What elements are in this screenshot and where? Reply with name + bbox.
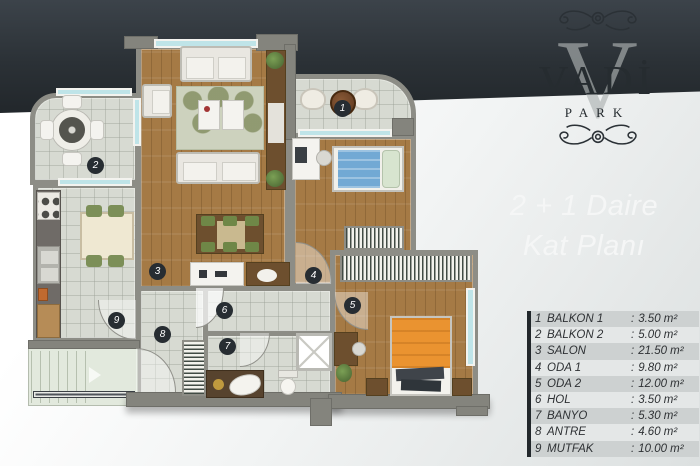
nightstand [452, 378, 472, 396]
bed-single [332, 146, 404, 192]
rug [176, 86, 264, 150]
bed-double [390, 316, 452, 396]
room-number-badge: 8 [154, 326, 171, 343]
chair [40, 120, 54, 140]
desk-chair [316, 150, 332, 166]
chair [62, 95, 82, 109]
ornament-flourish-icon [543, 123, 653, 149]
room-number-badge: 6 [216, 302, 233, 319]
wall [124, 36, 158, 49]
room-legend: 1BALKON 1:3.50 m² 2BALKON 2:5.00 m² 3SAL… [527, 311, 699, 457]
toilet [278, 370, 298, 378]
legend-row: 8ANTRE:4.60 m² [527, 424, 699, 440]
plant [336, 364, 352, 382]
room-number-badge: 7 [219, 338, 236, 355]
legend-row: 2BALKON 2:5.00 m² [527, 327, 699, 343]
chair [108, 205, 124, 217]
wardrobe [182, 340, 206, 396]
bathroom-vanity [206, 370, 264, 398]
chair [86, 205, 102, 217]
nightstand [366, 378, 388, 396]
shower [296, 333, 332, 371]
stair-handrail [33, 391, 135, 398]
room-number-badge: 9 [108, 312, 125, 329]
cooker [38, 288, 48, 301]
legend-row: 3SALON:21.50 m² [527, 343, 699, 359]
wardrobe [340, 254, 472, 282]
coffee-table [198, 100, 220, 130]
armchair [142, 84, 172, 118]
legend-row: 9MUTFAK:10.00 m² [527, 441, 699, 457]
sideboard [190, 262, 244, 286]
desk-chair [352, 342, 366, 356]
room-number-badge: 4 [305, 267, 322, 284]
stair-direction-arrow-icon [89, 367, 101, 383]
tv-unit [266, 50, 286, 190]
plan-title-line2: Kat Planı [468, 226, 700, 266]
sink [227, 372, 262, 398]
window [58, 178, 132, 186]
brand-logo: V VADİ PARK [515, 6, 680, 149]
sofa [176, 152, 260, 184]
wardrobe [344, 226, 404, 250]
plant [266, 52, 284, 69]
chair [62, 152, 82, 166]
coffee-table [222, 100, 244, 130]
sofa [180, 46, 252, 82]
dining-table [196, 214, 264, 254]
chair [108, 255, 124, 267]
toilet-bowl [280, 378, 296, 395]
round-table [52, 110, 92, 150]
window [133, 98, 141, 146]
legend-accent-bar [527, 311, 531, 457]
chair [300, 88, 326, 110]
kitchen-sink [37, 246, 60, 284]
plan-title: 2 + 1 Daire Kat Planı [468, 186, 700, 266]
wall-stub [310, 398, 332, 426]
wall [28, 340, 140, 349]
dining-table [80, 212, 134, 260]
vadi-park-floorplan-page: 1 2 3 4 5 6 7 8 9 V VADİ PARK [0, 0, 700, 466]
plan-title-line1: 2 + 1 Daire [468, 186, 700, 226]
window [466, 288, 475, 366]
chair [90, 120, 104, 140]
room-number-badge: 2 [87, 157, 104, 174]
kitchen-cabinet [37, 304, 60, 338]
logo-name: VADİ [515, 56, 680, 104]
buffet [246, 262, 290, 286]
room-number-badge: 5 [344, 297, 361, 314]
room-number-badge: 1 [334, 100, 351, 117]
room-number-badge: 3 [149, 263, 166, 280]
chair [352, 88, 378, 110]
logo-subtitle: PARK [515, 105, 680, 121]
legend-row: 6HOL:3.50 m² [527, 392, 699, 408]
stairs [28, 348, 138, 406]
legend-row: 5ODA 2:12.00 m² [527, 376, 699, 392]
wall [392, 118, 414, 136]
table-decor [204, 106, 210, 112]
wall-stub [456, 406, 488, 416]
window [298, 129, 392, 137]
stove [37, 192, 60, 220]
legend-row: 7BANYO:5.30 m² [527, 408, 699, 424]
legend-row: 4ODA 1:9.80 m² [527, 360, 699, 376]
legend-row: 1BALKON 1:3.50 m² [527, 311, 699, 327]
plant [266, 170, 284, 187]
chair [86, 255, 102, 267]
